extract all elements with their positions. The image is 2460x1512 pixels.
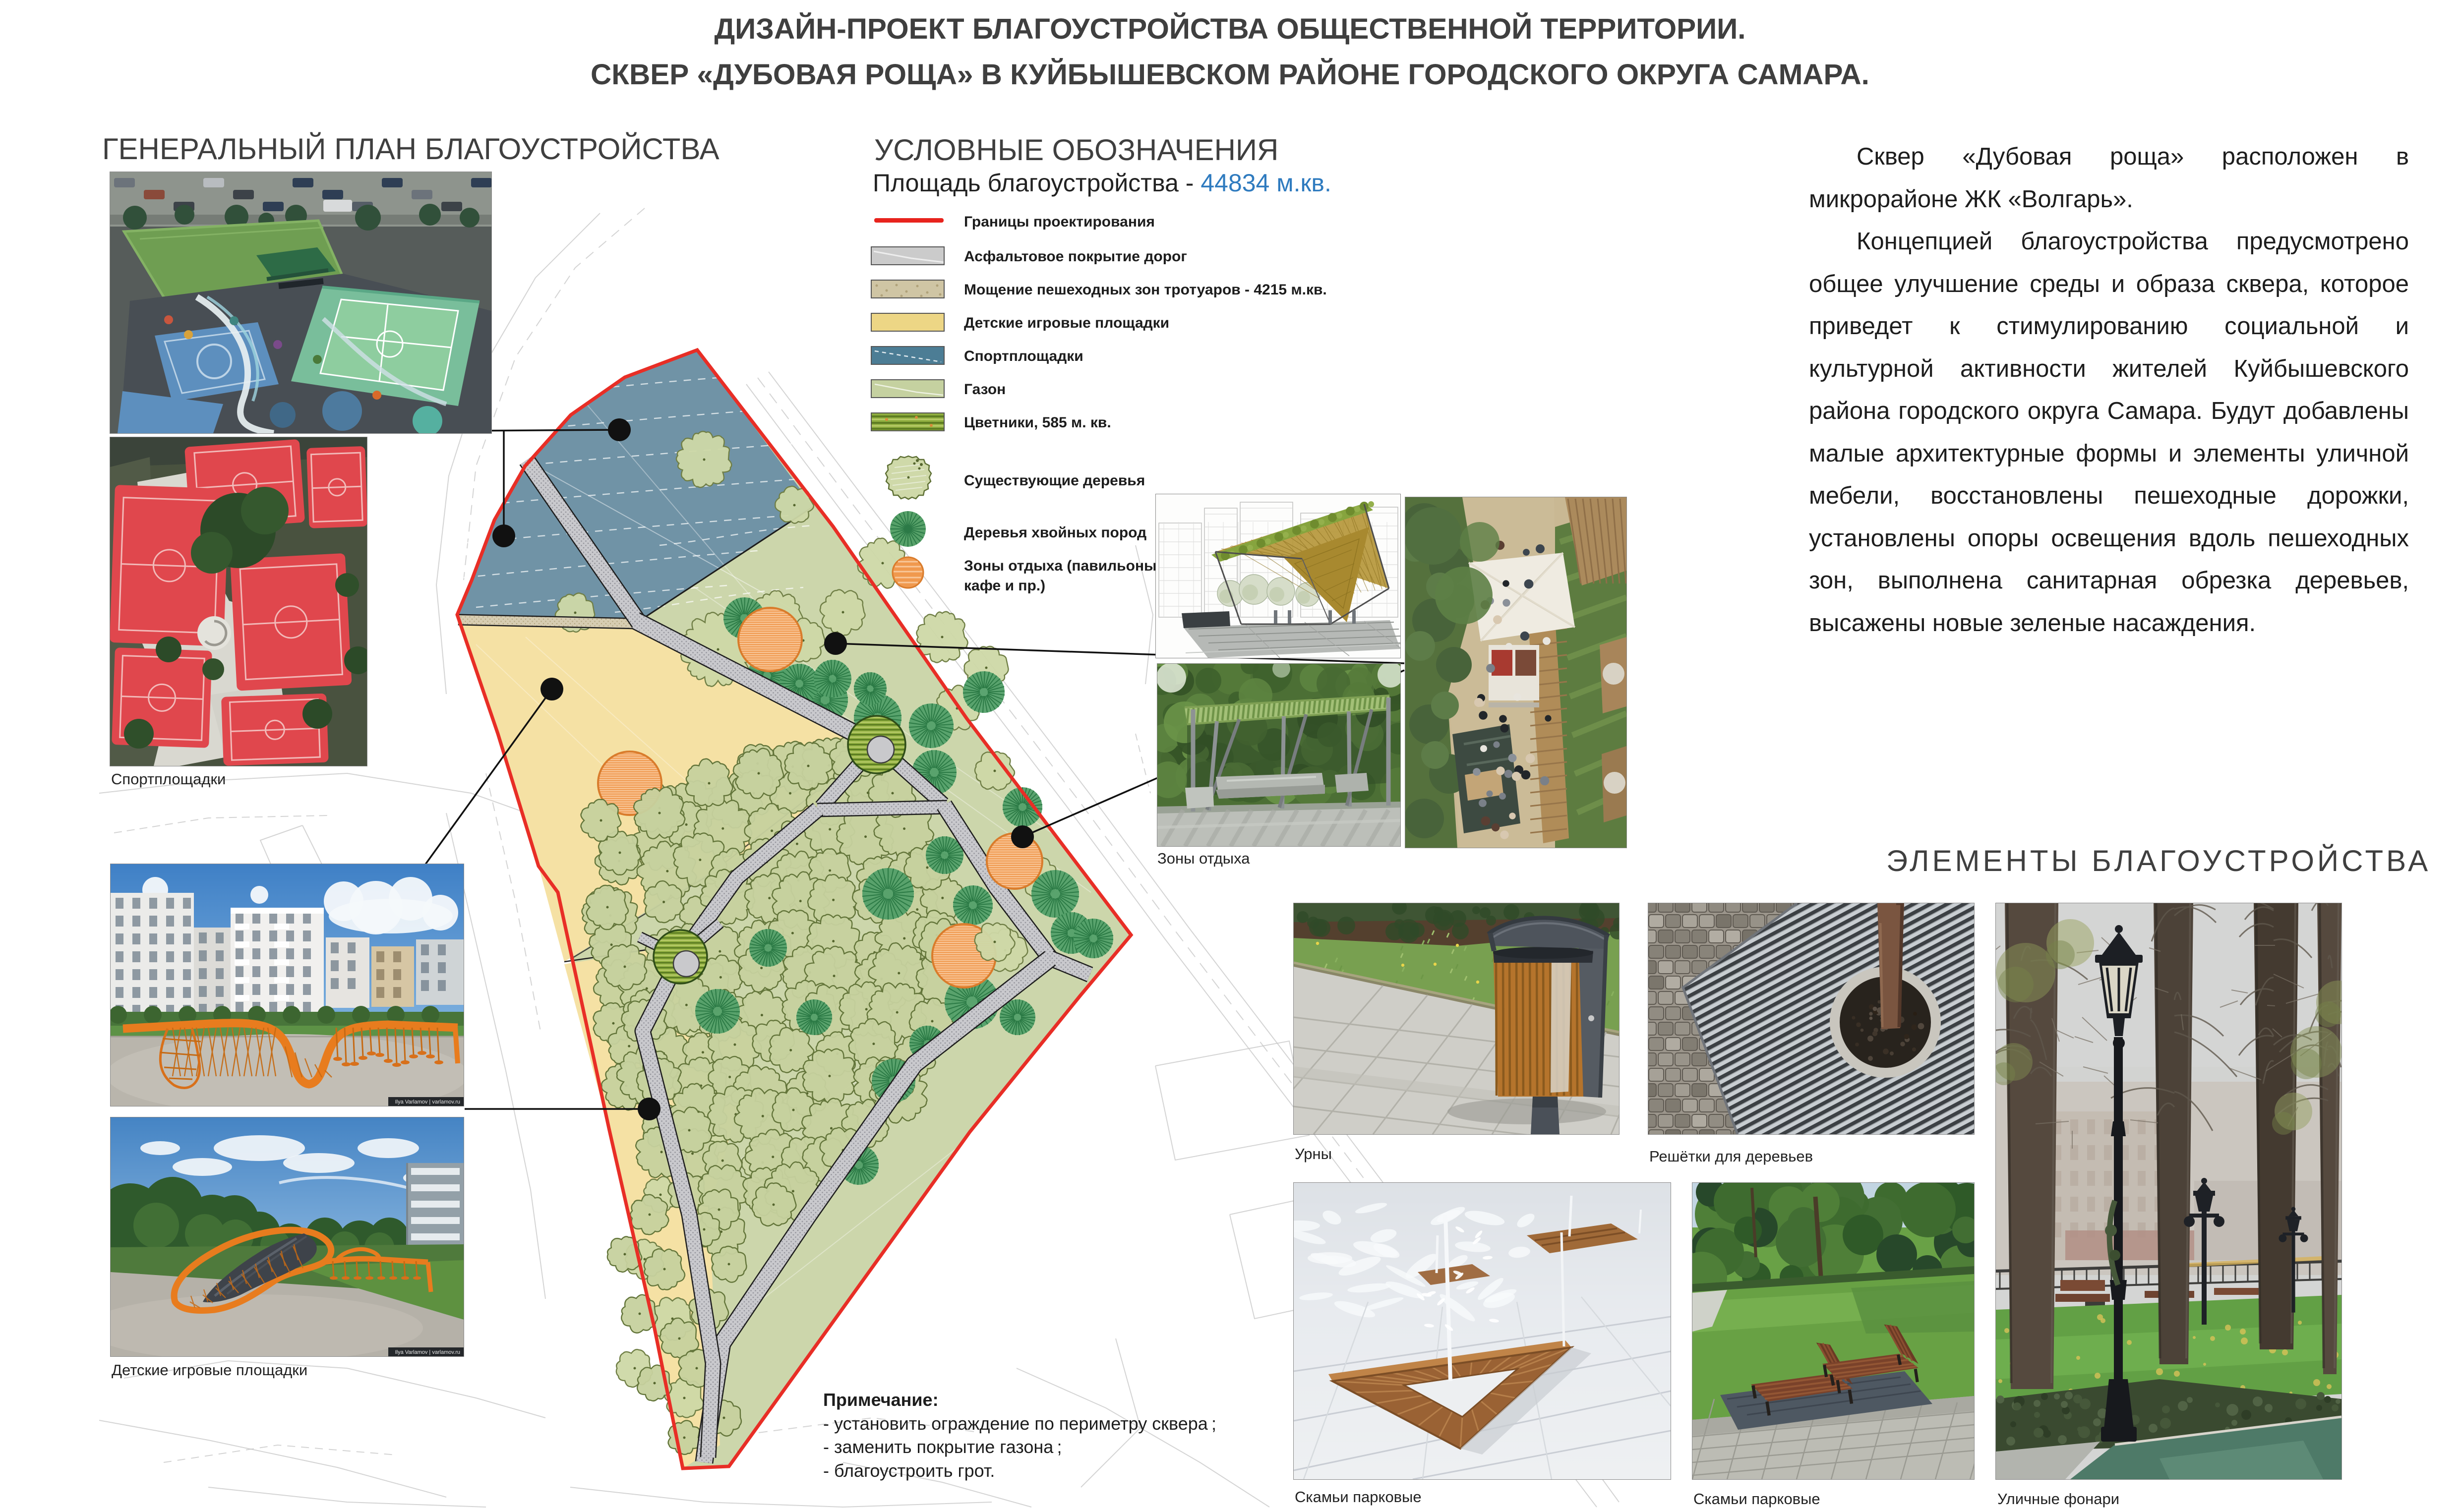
svg-text:Ilya Varlamov | varlamov.ru: Ilya Varlamov | varlamov.ru [395, 1099, 460, 1105]
svg-text:Ilya Varlamov | varlamov.ru: Ilya Varlamov | varlamov.ru [395, 1349, 460, 1355]
